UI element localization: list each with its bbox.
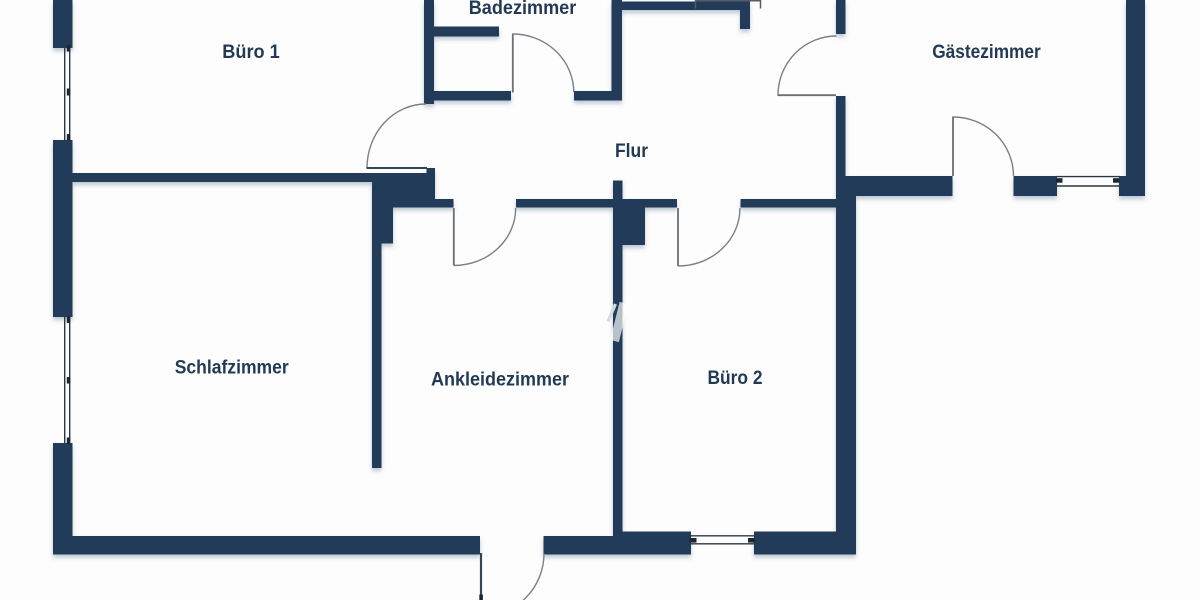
svg-text:Schlafzimmer: Schlafzimmer <box>175 358 290 379</box>
svg-text:Büro 2: Büro 2 <box>708 368 763 389</box>
svg-text:Gästezimmer: Gästezimmer <box>932 42 1041 63</box>
svg-text:Büro 1: Büro 1 <box>222 42 280 63</box>
svg-text:Flur: Flur <box>615 141 649 162</box>
svg-text:Badezimmer: Badezimmer <box>469 0 577 19</box>
svg-text:Ankleidezimmer: Ankleidezimmer <box>431 370 570 391</box>
